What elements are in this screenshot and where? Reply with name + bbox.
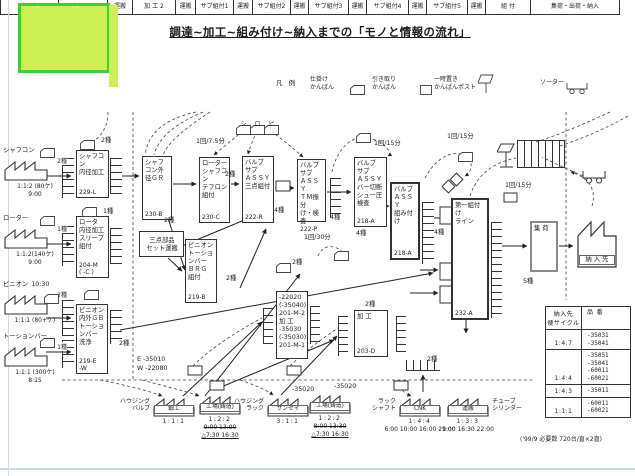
process-box-code: 222-P (300, 226, 324, 233)
delivery-cycle-table: 納入先 便サイクル 品 番 1:4:7 -35031 -35041 1:4:4 … (545, 306, 631, 418)
kanban-card-icon (44, 289, 59, 299)
parts-name-label: ハウジング バルブ (115, 398, 150, 412)
process-box-label: ピニオン 内外ＧＢ トーショ ンバー 洗浄 (79, 307, 106, 347)
process-box-code: 218-A (394, 250, 417, 257)
parts-rack-icon (110, 228, 122, 264)
parts-name-label: ハウジング ラック (229, 398, 264, 412)
kanban-letter: ピ (264, 120, 279, 130)
process-box-code: 232-A (455, 310, 486, 317)
supplier-factory: ハウジング バルブ 鍛工 1:1:1 (152, 393, 196, 426)
supplier-name: 鍛工 (154, 405, 194, 414)
table-header-cycle: 納入先 便サイクル (546, 307, 582, 329)
process-box-code: 218-A (357, 218, 385, 225)
kanban-card-icon (40, 211, 55, 221)
delivery-time-label: 9:00 (3, 259, 67, 267)
annotation-label: 4種 (274, 207, 284, 215)
annotation-label: 5種 (523, 278, 533, 286)
kinds-count-label: 2種 (57, 156, 67, 165)
process-box-label: 集 荷 (534, 225, 555, 233)
process-box: ロータ 内径加工 スリーブ 組付 204-M ( -C ) (76, 216, 109, 278)
kanban-card-icon (350, 80, 365, 99)
cycle-cell: 1:1:1 (546, 398, 582, 417)
process-box-label: ピニオン トーショ ンバー ＢＲＧ 組付 (188, 242, 215, 282)
table-row: 1:1:1 -60011 -60021 (546, 397, 630, 417)
process-box-label: バルブ サブ ＡＳＳＹ バー切断 シュー圧 検査 (357, 160, 385, 208)
delivery-cycle-label: 1:1:2 (80ケ) (3, 183, 67, 191)
delivery-cycle-label: 1:3:3 (446, 417, 490, 426)
process-box-label: 三点部品 セット運搬 (142, 237, 182, 253)
cycle-cell: 1:4:3 (546, 385, 582, 397)
annotation-label: 2種 (427, 356, 437, 364)
annotation-label: 2種 (226, 275, 236, 283)
part-numbers-cell: -35031 -35041 (582, 330, 630, 349)
parts-name-label: ラック シャフト (361, 398, 396, 412)
annotation-label: 2種 (365, 301, 375, 309)
delivery-time-label: 9:00 (3, 191, 67, 199)
process-box-label: -22020 (-35040) 201-M-2 加 工 -35030 (-350… (279, 294, 306, 350)
process-box: バルブ ＡＳＳＹ 組み付け 218-A (390, 182, 420, 260)
annotation-label: -35020 (334, 383, 356, 391)
part-numbers-cell: -60011 -60021 (582, 398, 630, 417)
new-time-label: △7:30 16:30 (308, 431, 352, 439)
supplier-factory: ハウジング ラック サンセイ 3:1:1 (266, 393, 310, 426)
supplier-name: 工場(鋳造) (310, 402, 350, 411)
process-box: バルブ サブ ＡＳＳＹ バー切断 シュー圧 検査 218-A (354, 157, 387, 227)
process-box: シャフ コン外 径ＧＲ 230-B (142, 156, 172, 220)
supplier-time: 10:30 (31, 281, 49, 288)
parts-rack-icon (396, 316, 406, 352)
process-box: シャフコ ン 内径加工 229-L (76, 150, 109, 198)
kanban-card-icon (40, 333, 55, 343)
annotation-label: 2種 (292, 259, 302, 267)
process-box: ローター シャフコ ン テフロン 組付 230-C (199, 157, 230, 223)
sorter-icon (517, 140, 565, 168)
kanban-card-icon: ピ (264, 120, 279, 130)
annotation-label: 1回/15分 (374, 140, 401, 148)
delivery-cycle-label: 1:2:2 (308, 414, 352, 423)
process-box: 第一組付け ライン 232-A (451, 198, 489, 320)
process-box-label: バルブ サブ ＡＳＳＹ 三点組付 (245, 159, 272, 191)
process-box-label: ロータ 内径加工 スリーブ 組付 (79, 219, 107, 251)
table-row: 1:4:4 -35051 -35041 -60011 -60021 (546, 349, 630, 384)
annotation-label: 4種 (434, 229, 444, 237)
cycle-cell: 1:4:4 (546, 350, 582, 384)
process-box-code: 204-M ( -C ) (79, 262, 107, 276)
sorter-cart-icon (564, 80, 590, 99)
process-box-label: バルブ サブ ＡＳＳＹ ＴＭ振分 け・検査 (300, 162, 324, 226)
delivery-cycle-label: 1:1:1 (300ケ) (3, 369, 67, 377)
delivery-cycle-label: 1:4:4 (398, 417, 442, 426)
supplier-name: ローター (3, 215, 28, 222)
process-box: 三点部品 セット運搬 (139, 231, 184, 257)
kanban-card-icon (356, 128, 371, 138)
annotation-label: 1回/7.5分 (196, 138, 225, 146)
annotation-label: 1回/15分 (447, 133, 474, 141)
process-box-label: 第一組付け ライン (455, 202, 486, 226)
annotation-label: 1回/15分 (505, 182, 532, 190)
annotation-label: 4種 (330, 214, 340, 222)
old-time-label: 8:00 13:30 (308, 423, 352, 431)
parts-rack-icon (491, 222, 502, 318)
annotation-label: 1種 (103, 208, 113, 216)
parts-rack-icon (263, 308, 273, 344)
part-numbers-cell: -35051 -35041 -60011 -60021 (582, 350, 630, 384)
factory-icon (3, 155, 49, 181)
process-box-label: シャフコ ン 内径加工 (79, 153, 107, 177)
sorter-stand-icon (497, 142, 517, 174)
kanban-post-icon (420, 80, 432, 99)
process-box-code: 219-E -W (79, 358, 106, 372)
delivery-cycle-label: 3:1:1 (266, 417, 310, 426)
process-box-label: バルブ ＡＳＳＹ 組み付け (394, 186, 417, 226)
supplier-name: サンセイ (268, 405, 308, 414)
kinds-count-label: 1種 (57, 224, 67, 233)
parts-rack-icon (110, 310, 122, 344)
process-box: ピニオン 内外ＧＢ トーショ ンバー 洗浄 219-E -W (76, 304, 108, 374)
annotation-label: 4種 (356, 230, 366, 238)
process-box: バルブ サブ ＡＳＳＹ 三点組付 222-R (242, 156, 274, 223)
parts-rack-icon (338, 316, 348, 356)
parts-rack-icon (330, 178, 341, 218)
supplier-factory: チューブ シリンダー 運搬 1:3:3 9:00 16:30 22:00 (446, 393, 490, 434)
kanban-card-icon: シ (236, 120, 251, 130)
table-row: 1:4:3 -35011 (546, 384, 630, 397)
annotation-label: E -35010 (137, 356, 165, 364)
customer-factory: 納 入 先 (576, 208, 618, 268)
annotation-label: W -22080 (137, 365, 168, 373)
parts-name-label: チューブ シリンダー (492, 398, 527, 412)
parts-rack-icon (110, 158, 122, 194)
process-box-code: 222-R (245, 214, 272, 221)
customer-label: 納 入 先 (579, 255, 615, 265)
kanban-card-icon (276, 258, 291, 268)
table-header-part: 品 番 (582, 307, 630, 329)
annotation-label: 2種 (225, 171, 235, 179)
kinds-count-label: 1種 (57, 342, 67, 351)
process-box-code: 203-D (357, 348, 386, 355)
factory-icon (3, 289, 49, 315)
truck-icon (580, 169, 608, 189)
supplier-name: CNK (400, 405, 440, 414)
parts-rack-icon (310, 306, 320, 344)
kanban-card-icon (80, 135, 95, 145)
process-box-label: ローター シャフコ ン テフロン 組付 (202, 160, 228, 200)
process-box: 集 荷 (530, 221, 558, 272)
process-box: ピニオン トーショ ンバー ＢＲＧ 組付 219-B (185, 239, 217, 303)
part-numbers-cell: -35011 (582, 385, 630, 397)
supplier-name: ピニオン (3, 281, 28, 288)
old-time-label: 9:00 13:00 (198, 424, 242, 432)
process-box: -22020 (-35040) 201-M-2 加 工 -35030 (-350… (276, 291, 308, 359)
kanban-card-icon (334, 246, 349, 256)
new-time-label: △7:30 16:30 (198, 432, 242, 440)
kanban-card-icon: ロ (250, 120, 265, 130)
annotation-label: 1回/30分 (304, 234, 331, 242)
supplier-name: 運搬 (448, 405, 488, 414)
delivery-cycle-label: 1:1:2(140ケ) (3, 251, 67, 259)
process-box-label: シャフ コン外 径ＧＲ (145, 159, 170, 183)
footer-note: ('99/9 必要数 720台/直×2直) (520, 434, 602, 443)
kanban-card-icon (84, 285, 99, 295)
kanban-letter: シ (236, 120, 251, 130)
kanban-card-icon (82, 202, 97, 212)
process-box: バルブ サブ ＡＳＳＹ ＴＭ振分 け・検査 222-P (297, 159, 326, 222)
delivery-cycle-label: 1:2:2 (198, 415, 242, 424)
supplier-factory: シャフコン 2種 1:1:2 (80ケ) 9:00 (3, 146, 67, 199)
cycle-cell: 1:4:7 (546, 330, 582, 349)
delivery-cycle-label: 1:1:1 (80+ケ) (3, 317, 67, 325)
process-box-label: 加 工 (357, 313, 386, 321)
delivery-time-label: 8:15 (3, 377, 67, 385)
process-box-code: 229-L (79, 189, 107, 196)
annotation-label: 2種 (119, 340, 129, 348)
factory-icon (3, 223, 49, 249)
delivery-times-label: 9:00 16:30 22:00 (426, 426, 510, 434)
flow-diagram-page: 調達~加工~組み付け~納入までの「モノと情報の流れ」 凡 例 仕掛け かんばん … (0, 0, 635, 476)
supplier-factory: ローター 1種 1:1:2(140ケ) 9:00 (3, 214, 67, 267)
annotation-label: 2種 (164, 217, 174, 225)
process-box-code: 230-C (202, 214, 228, 221)
supplier-name: シャフコン (3, 147, 34, 154)
delivery-cycle-label: 1:1:1 (152, 417, 196, 426)
kanban-card-icon (40, 143, 55, 153)
kanban-letter: ロ (250, 120, 265, 130)
table-row: 1:4:7 -35031 -35041 (546, 329, 630, 349)
supplier-factory: トーションバー 1種 1:1:1 (300ケ) 8:15 (3, 332, 67, 385)
parts-rack-icon (422, 202, 434, 264)
sign-pole-icon (478, 74, 496, 98)
supplier-factory: 工場(鋳造) 1:2:2 8:00 13:30 △7:30 16:30 (308, 390, 352, 439)
annotation-label: 2種 (101, 137, 111, 145)
kanban-card-icon (458, 147, 473, 157)
annotation-label: -35020 (292, 386, 314, 394)
process-box-code: 219-B (188, 294, 215, 301)
process-box: 加 工 203-D (354, 310, 388, 357)
